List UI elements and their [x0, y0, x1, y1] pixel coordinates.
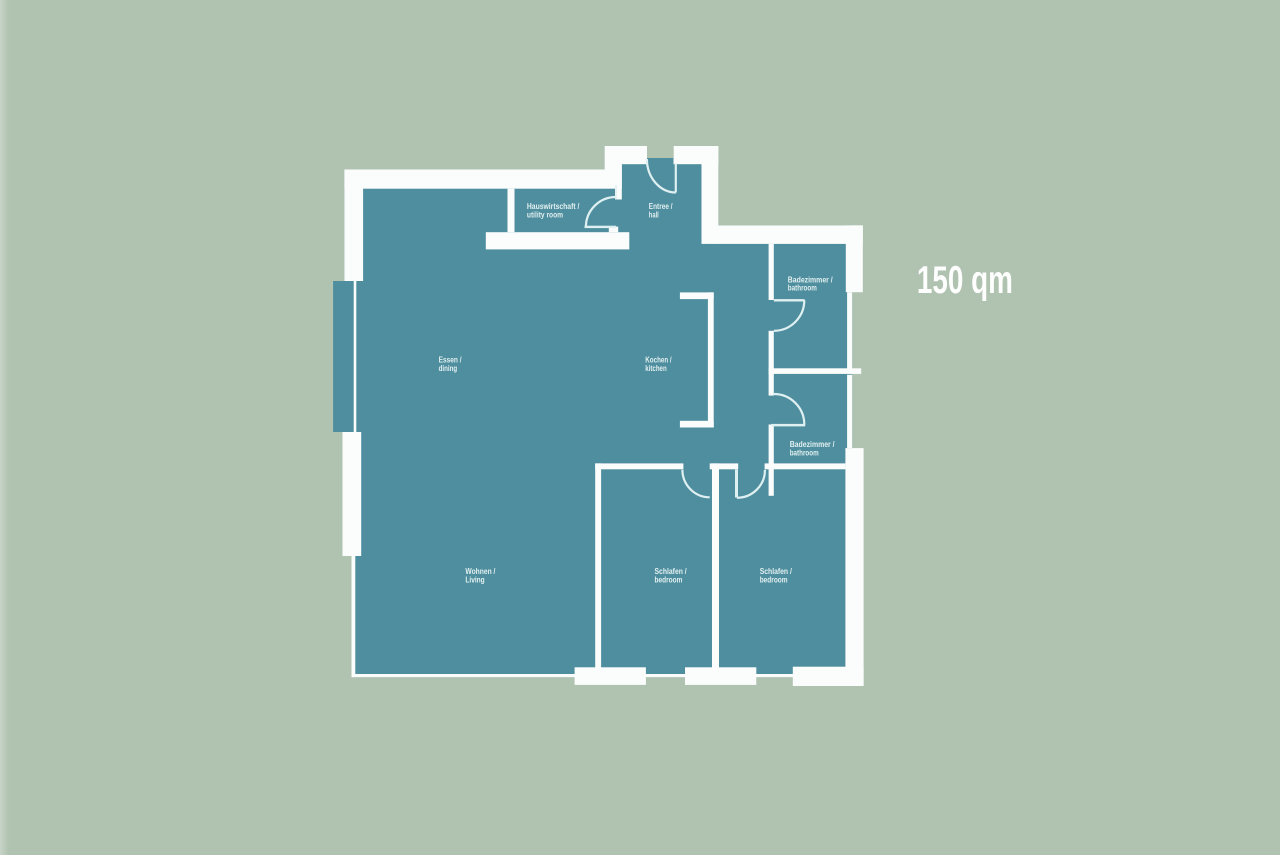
- svg-text:kitchen: kitchen: [645, 364, 666, 373]
- svg-text:bedroom: bedroom: [760, 575, 788, 584]
- svg-text:bathroom: bathroom: [788, 284, 817, 293]
- svg-text:150 qm: 150 qm: [917, 259, 1013, 302]
- svg-text:hall: hall: [649, 210, 659, 219]
- svg-text:dining: dining: [439, 364, 458, 373]
- svg-text:Living: Living: [465, 575, 484, 584]
- svg-text:bathroom: bathroom: [790, 448, 819, 457]
- svg-text:utility room: utility room: [527, 210, 563, 219]
- svg-text:bedroom: bedroom: [655, 575, 683, 584]
